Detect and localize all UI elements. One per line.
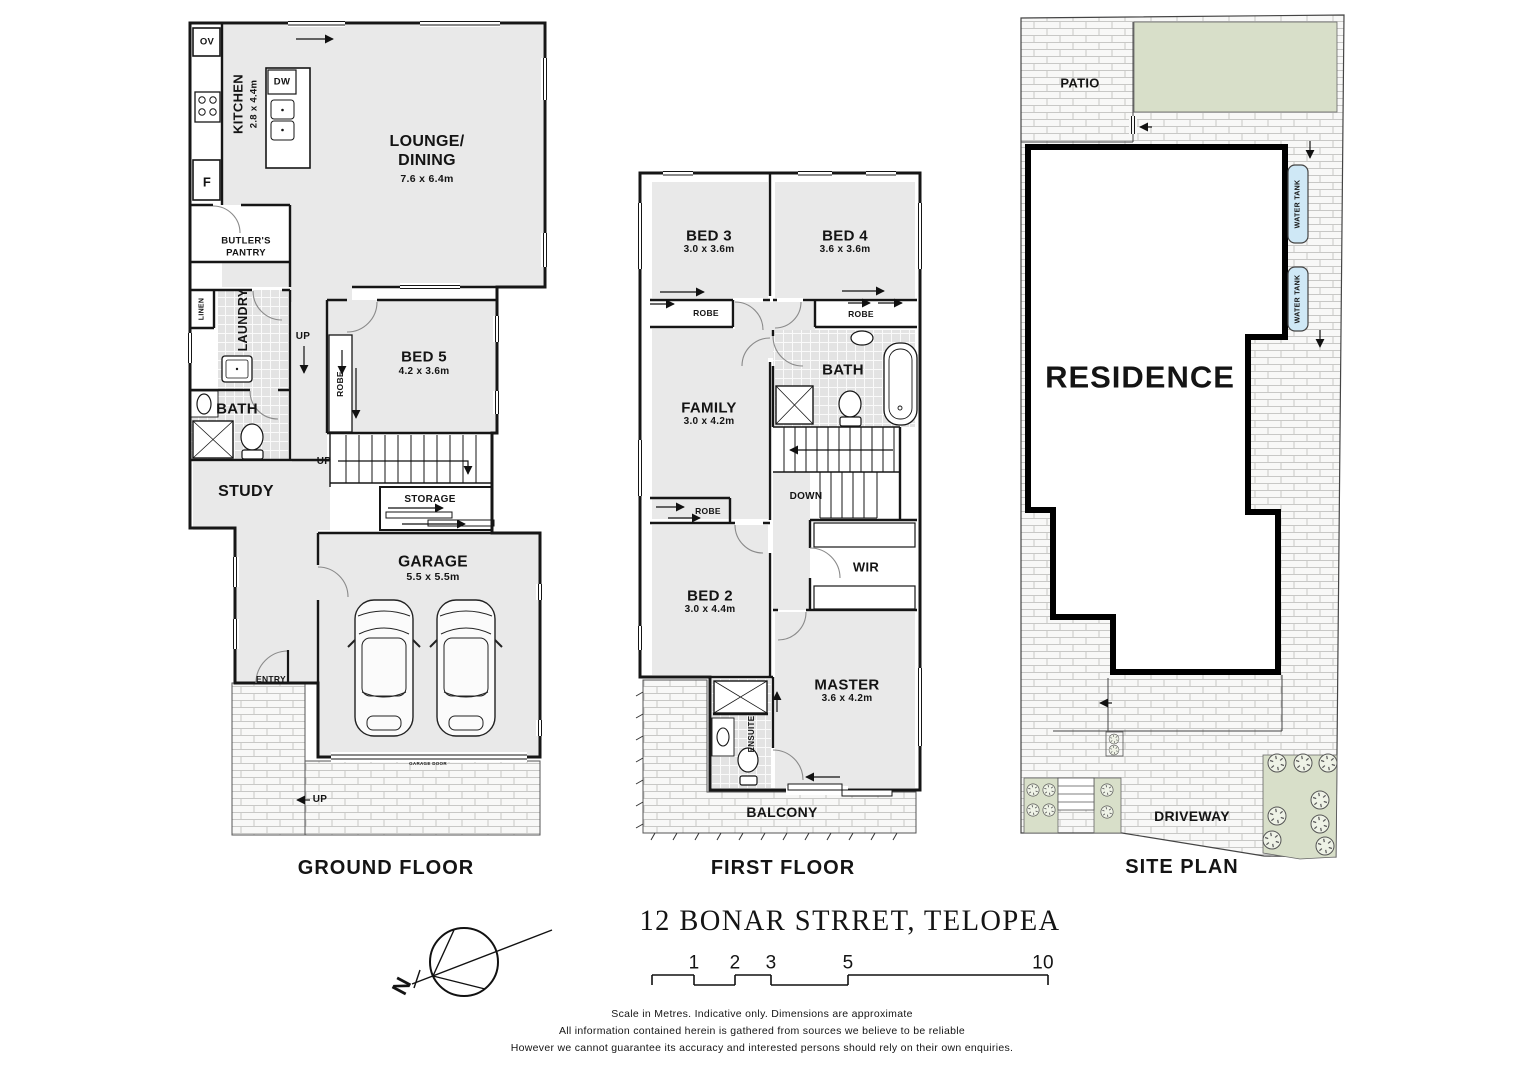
room-label-bath-ff: BATH: [822, 363, 864, 378]
room-label-wir: WIR: [853, 561, 879, 574]
wir-shelf: [814, 586, 915, 609]
residence-footprint: [1028, 147, 1285, 672]
scale-tick-1: 1: [689, 954, 700, 973]
room-label-bed4: BED 4: [822, 229, 868, 244]
floorplan-sheet: OV KITCHEN 2.8 x 4.4m DW F LOUNGE/ DININ…: [0, 0, 1528, 1080]
room-label-robe-bed2: ROBE: [695, 507, 721, 516]
room-label-butlers-pantry2: PANTRY: [226, 248, 266, 258]
room-label-robe-bed3: ROBE: [693, 309, 719, 318]
up-label-porch: UP: [313, 795, 328, 805]
room-dims-bed2: 3.0 x 4.4m: [685, 605, 736, 615]
page-title: 12 BONAR STRRET, TELOPEA: [639, 906, 1060, 936]
room-label-bed3: BED 3: [686, 229, 732, 244]
ground-floor-title: GROUND FLOOR: [298, 858, 474, 878]
tree-icon: [1109, 745, 1119, 755]
lawn-area: [1134, 22, 1337, 112]
scale-tick-3: 3: [766, 954, 777, 973]
room-dims-garage: 5.5 x 5.5m: [406, 572, 459, 583]
disclaimer-line-2: All information contained herein is gath…: [559, 1026, 965, 1037]
car-icon: [430, 600, 502, 736]
tree-icon: [1109, 734, 1119, 744]
room-label-robe-bed5: ROBE: [336, 371, 345, 397]
room-label-ensuite: ENSUITE: [748, 716, 756, 753]
car-icon: [348, 600, 420, 736]
basin-icon: [717, 728, 729, 746]
basin-icon: [197, 394, 211, 414]
fridge-label: F: [203, 176, 211, 189]
residence-label: RESIDENCE: [1045, 362, 1235, 393]
room-label-dining: DINING: [398, 153, 456, 169]
room-dims-family: 3.0 x 4.2m: [684, 417, 735, 427]
room-label-bed5: BED 5: [401, 350, 447, 365]
disclaimer-line-3: However we cannot guarantee its accuracy…: [511, 1043, 1013, 1054]
patio-label: PATIO: [1060, 77, 1099, 90]
room-label-linen: LINEN: [199, 298, 206, 321]
first-floor-plan: [635, 166, 927, 846]
room-dims-bed3: 3.0 x 3.6m: [684, 245, 735, 255]
room-dims-kitchen: 2.8 x 4.4m: [249, 80, 259, 128]
room-label-bed2: BED 2: [687, 589, 733, 604]
scale-tick-10: 10: [1032, 954, 1054, 973]
room-dims-bed4: 3.6 x 3.6m: [820, 245, 871, 255]
room-dims-master: 3.6 x 4.2m: [822, 694, 873, 704]
room-label-laundry: LAUNDRY: [237, 289, 250, 352]
basin-icon: [851, 331, 873, 345]
oven-label: OV: [200, 37, 214, 47]
sliding-door: [788, 784, 842, 790]
room-dims-bed5: 4.2 x 3.6m: [399, 367, 450, 377]
scale-tick-5: 5: [843, 954, 854, 973]
site-plan: [1016, 10, 1350, 865]
toilet-icon: [839, 391, 861, 417]
site-plan-title: SITE PLAN: [1125, 857, 1238, 877]
up-label-hall: UP: [296, 332, 311, 342]
water-tank-label: WATER TANK: [1295, 180, 1302, 229]
ground-floor-plan: [183, 10, 558, 850]
room-label-kitchen: KITCHEN: [232, 74, 245, 134]
room-label-balcony: BALCONY: [746, 805, 817, 819]
water-tank-label-2: WATER TANK: [1295, 275, 1302, 324]
scale-tick-2: 2: [730, 954, 741, 973]
room-label-family: FAMILY: [681, 401, 736, 416]
room-label-lounge: LOUNGE/: [390, 134, 465, 150]
cooktop-icon: [195, 92, 220, 122]
up-label-stairs: UP: [317, 457, 332, 467]
first-floor-title: FIRST FLOOR: [711, 858, 855, 878]
disclaimer-line-1: Scale in Metres. Indicative only. Dimens…: [611, 1009, 912, 1020]
room-dims-lounge: 7.6 x 6.4m: [400, 174, 453, 185]
toilet-icon: [241, 424, 263, 450]
entry-label: ENTRY: [256, 675, 286, 684]
driveway-label: DRIVEWAY: [1154, 809, 1230, 823]
room-label-robe-bed4: ROBE: [848, 310, 874, 319]
driveway-apron: [305, 761, 540, 835]
compass-circle: [430, 928, 498, 996]
room-label-garage: GARAGE: [398, 554, 468, 570]
down-label: DOWN: [790, 492, 823, 502]
wir-shelf: [814, 523, 915, 547]
entry-porch: [232, 683, 305, 835]
room-label-butlers-pantry: BUTLER'S: [221, 236, 271, 246]
room-label-storage: STORAGE: [404, 495, 455, 505]
room-label-bath-gf: BATH: [216, 402, 258, 417]
north-arrow: [380, 900, 580, 1020]
garage-door-label: GARAGE DOOR: [409, 762, 447, 767]
room-label-study: STUDY: [218, 484, 274, 500]
dishwasher-label: DW: [274, 77, 290, 87]
room-label-master: MASTER: [814, 678, 879, 693]
